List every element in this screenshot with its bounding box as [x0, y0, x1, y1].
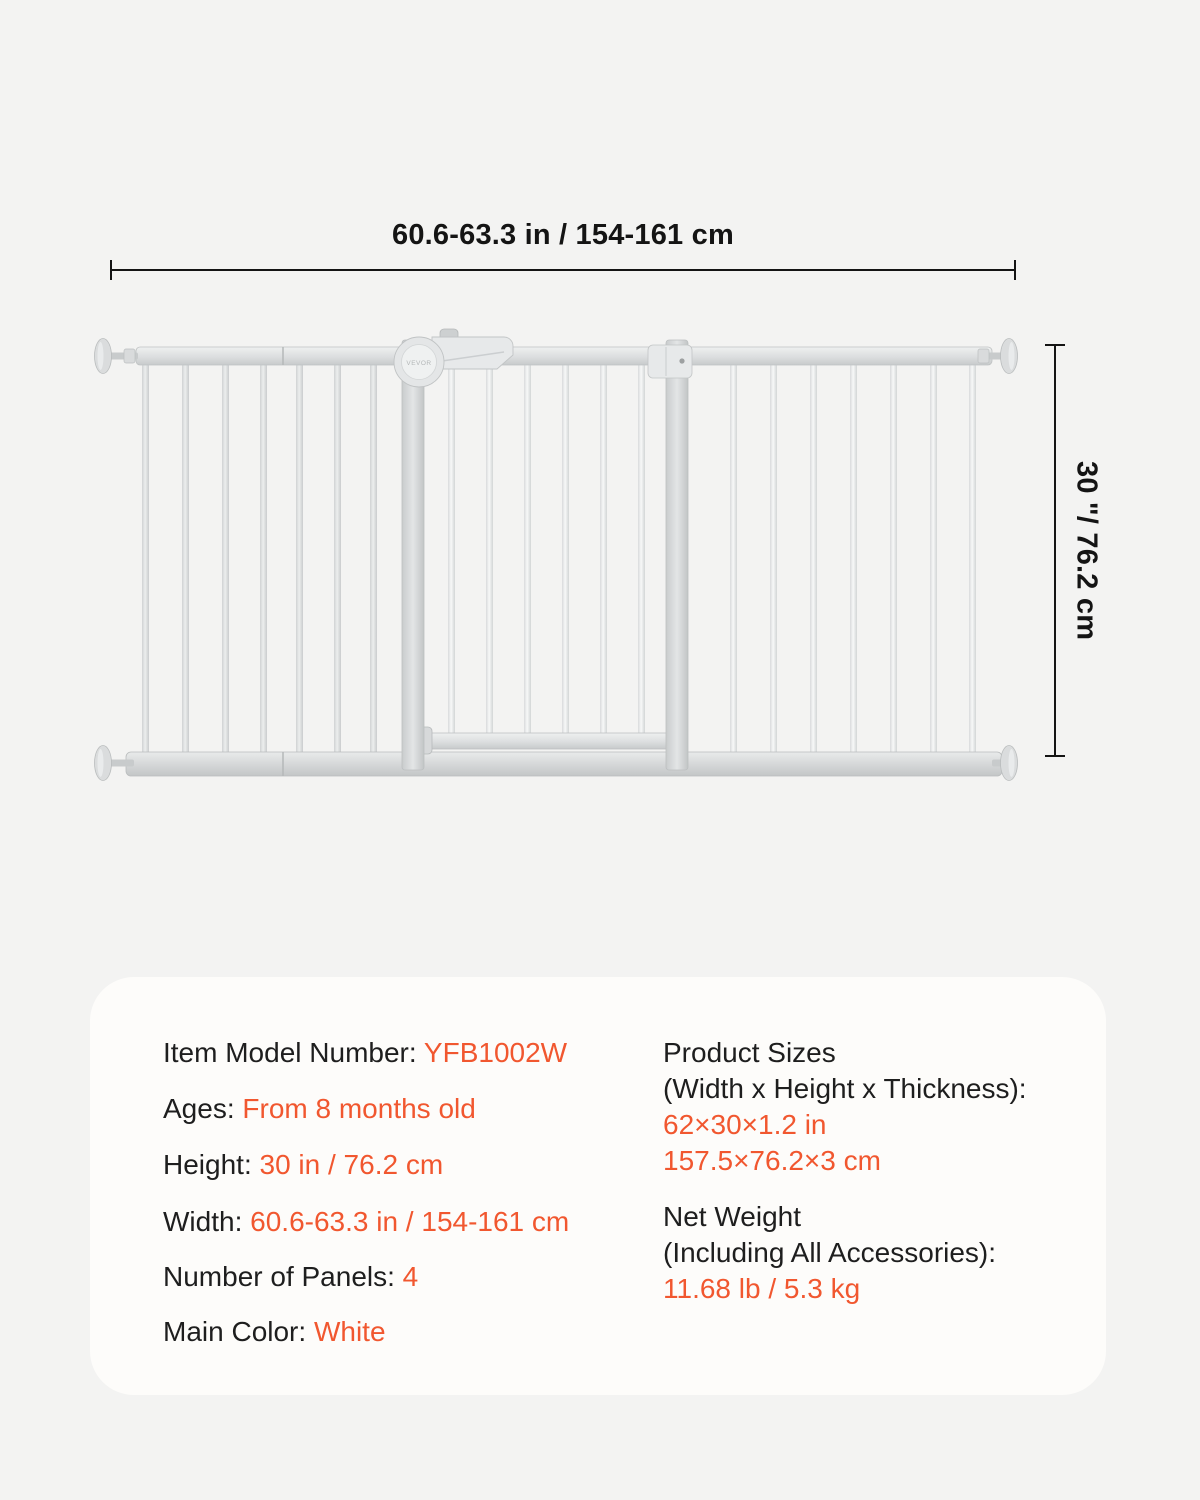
door-panel-bars: [448, 363, 645, 735]
bottom-rail: [126, 752, 1002, 776]
spec-label: (Width x Height x Thickness):: [663, 1071, 1027, 1107]
spec-row-width: Width: 60.6-63.3 in / 154-161 cm: [163, 1205, 569, 1239]
spec-row-model: Item Model Number: YFB1002W: [163, 1036, 567, 1070]
spec-value: From 8 months old: [242, 1093, 475, 1124]
spec-label: Number of Panels:: [163, 1261, 395, 1292]
width-dimension-line: [111, 269, 1015, 271]
pressure-knob-top-left: [95, 339, 139, 374]
spec-row-height: Height: 30 in / 76.2 cm: [163, 1148, 443, 1182]
spec-label: Width:: [163, 1206, 242, 1237]
latch-catch-bracket: [648, 345, 692, 378]
spec-value: 30 in / 76.2 cm: [260, 1149, 444, 1180]
spec-label: (Including All Accessories):: [663, 1235, 996, 1271]
spec-value: White: [314, 1316, 386, 1347]
spec-label: Net Weight: [663, 1199, 996, 1235]
width-dimension-tick-left: [110, 260, 112, 280]
spec-value: 4: [403, 1261, 419, 1292]
spec-block-net-weight: Net Weight (Including All Accessories): …: [663, 1199, 996, 1307]
door-bottom-rail: [424, 733, 672, 749]
spec-row-color: Main Color: White: [163, 1315, 386, 1349]
spec-label: Ages:: [163, 1093, 235, 1124]
spec-label: Main Color:: [163, 1316, 306, 1347]
height-dimension-labelbox: 30 "/ 76.2 cm: [1064, 345, 1108, 757]
height-dimension-line: [1054, 345, 1056, 757]
spec-label: Height:: [163, 1149, 252, 1180]
spec-row-ages: Ages: From 8 months old: [163, 1092, 476, 1126]
spec-card: Item Model Number: YFB1002W Ages: From 8…: [90, 977, 1106, 1395]
width-dimension-label: 60.6-63.3 in / 154-161 cm: [111, 219, 1015, 252]
spec-label: Product Sizes: [663, 1035, 1027, 1071]
spec-row-panels: Number of Panels: 4: [163, 1260, 418, 1294]
pressure-knob-top-right: [978, 339, 1018, 374]
door-left-post: [402, 340, 424, 770]
spec-value: 157.5×76.2×3 cm: [663, 1143, 1027, 1179]
spec-block-product-sizes: Product Sizes (Width x Height x Thicknes…: [663, 1035, 1027, 1179]
spec-value: 11.68 lb / 5.3 kg: [663, 1271, 996, 1307]
door-right-post: [666, 340, 688, 770]
height-dimension-tick-bottom: [1045, 755, 1065, 757]
spec-value: 60.6-63.3 in / 154-161 cm: [250, 1206, 569, 1237]
baby-gate-illustration: VEVOR: [80, 325, 1030, 785]
height-dimension-label: 30 "/ 76.2 cm: [1070, 461, 1103, 640]
spec-value: 62×30×1.2 in: [663, 1107, 1027, 1143]
spec-value: YFB1002W: [424, 1037, 567, 1068]
top-rail: [136, 347, 992, 365]
product-spec-infographic: 60.6-63.3 in / 154-161 cm 30 "/ 76.2 cm: [0, 0, 1200, 1500]
height-dimension-tick-top: [1045, 344, 1065, 346]
width-dimension-tick-right: [1014, 260, 1016, 280]
left-panel-bars: [142, 363, 377, 755]
spec-label: Item Model Number:: [163, 1037, 417, 1068]
right-panel-bars: [730, 363, 976, 755]
brand-text: VEVOR: [406, 360, 431, 367]
